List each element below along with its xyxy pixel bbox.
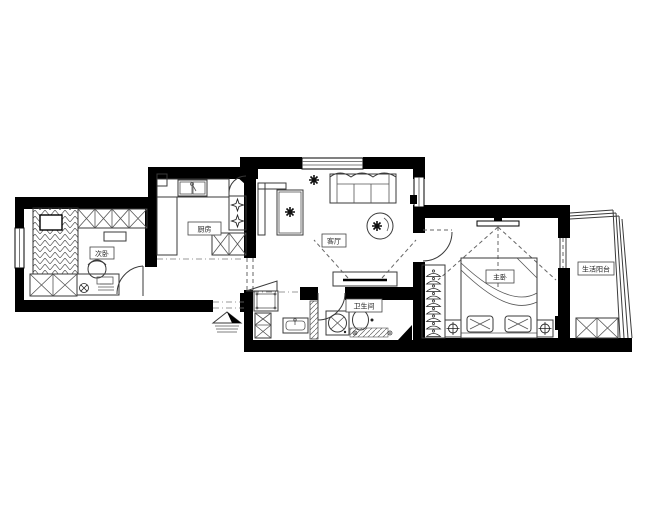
room-label-kitchen: 厨房 [198,225,212,234]
low-cabinet [30,274,77,296]
sink [178,180,207,196]
wardrobe-hangers [422,265,445,338]
pillow [40,215,62,230]
desk-lamp-icon [80,284,89,293]
room-label-bathroom: 卫生间 [354,302,375,311]
room-living: 客厅 [258,173,417,286]
room-label-balcony: 生活阳台 [582,265,610,274]
balcony-cabinet [576,318,618,338]
entry-steps-symbol [213,312,241,332]
floor-plan-drawing: 次卧 厨房 [0,0,650,520]
nightstand-right [537,320,553,337]
stove [229,196,246,230]
corner-shelf [398,325,412,340]
coffee-table [367,213,393,239]
floor-drain-2 [388,331,392,335]
nightstand-left [445,320,461,337]
desk-chair [88,260,106,278]
shelf [104,232,126,241]
shower-floor [350,328,388,337]
room-label-secondary-bedroom: 次卧 [95,249,109,258]
room-label-master: 主卧 [493,273,507,282]
plant-icon [285,207,295,217]
sofa [330,173,396,203]
washing-machine [326,311,349,335]
window-master-balcony [560,238,566,268]
desk [77,274,119,295]
plant-icon-corner [309,175,319,185]
floor-plan-canvas: 次卧 厨房 [0,0,650,520]
entry-opening [213,302,244,308]
window-left-bedroom [15,228,24,268]
wardrobe [78,209,147,228]
room-secondary-bedroom: 次卧 [30,208,147,296]
room-master-bedroom: 主卧 [422,218,561,338]
entry-screen [258,183,286,235]
wall-unit [410,195,417,204]
room-kitchen: 厨房 [157,174,246,255]
master-door [423,230,452,261]
window-living-top [302,158,363,169]
plant-cabinet [277,190,303,235]
room-label-living: 客厅 [327,237,341,246]
plant-icon-table [372,221,382,231]
storage-stack [255,313,271,338]
partition-wall [310,301,318,339]
counter-left [157,197,177,255]
room-balcony: 生活阳台 [570,210,632,338]
vanity-sink [283,318,308,333]
kitchen-cabinet [212,233,246,255]
radiator [555,316,561,330]
bedroom-door [117,266,143,296]
